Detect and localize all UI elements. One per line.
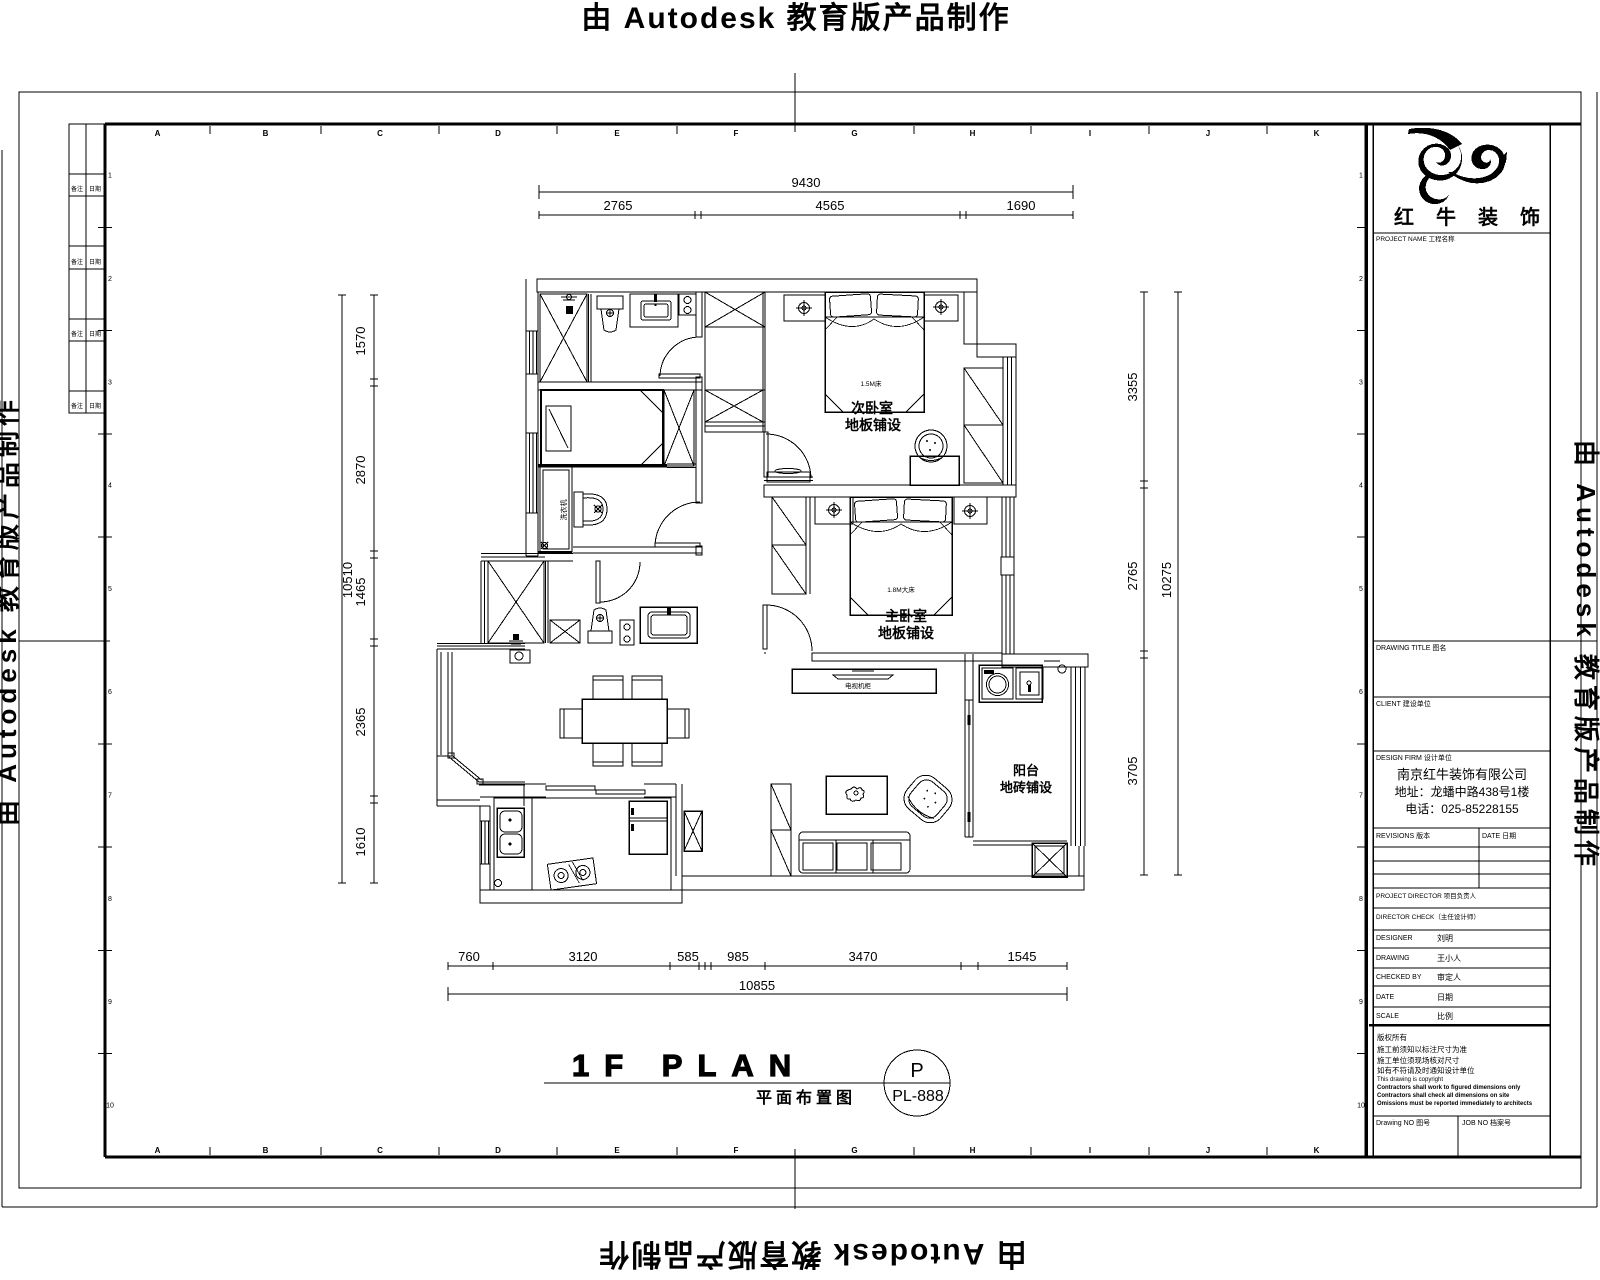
svg-text:985: 985: [727, 949, 749, 964]
svg-text:比例: 比例: [1437, 1011, 1453, 1021]
svg-text:E: E: [614, 1146, 620, 1155]
svg-text:1465: 1465: [353, 578, 368, 607]
svg-text:4: 4: [108, 483, 112, 490]
svg-text:3355: 3355: [1125, 373, 1140, 402]
svg-text:1545: 1545: [1008, 949, 1037, 964]
svg-text:C: C: [377, 129, 383, 138]
svg-text:日期: 日期: [89, 330, 101, 338]
svg-text:3470: 3470: [849, 949, 878, 964]
svg-text:日期: 日期: [1437, 993, 1453, 1002]
svg-text:电视机柜: 电视机柜: [845, 681, 872, 690]
svg-text:SCALE: SCALE: [1376, 1013, 1399, 1020]
svg-text:Omissions must be reported imm: Omissions must be reported immediately t…: [1377, 1101, 1533, 1107]
svg-text:由 Autodesk 教育版产品制作: 由 Autodesk 教育版产品制作: [597, 1237, 1026, 1271]
svg-text:主卧室: 主卧室: [885, 608, 927, 624]
svg-text:6: 6: [1359, 689, 1363, 696]
svg-text:DATE 日期: DATE 日期: [1482, 832, 1516, 840]
svg-text:C: C: [377, 1146, 383, 1155]
svg-text:红牛装饰: 红牛装饰: [1394, 205, 1562, 229]
svg-text:7: 7: [108, 792, 112, 799]
svg-text:Drawing NO 图号: Drawing NO 图号: [1376, 1119, 1430, 1127]
svg-text:3: 3: [108, 379, 112, 386]
svg-text:洗衣机: 洗衣机: [559, 500, 568, 521]
svg-text:I: I: [1089, 1146, 1091, 1155]
svg-text:版权所有: 版权所有: [1377, 1032, 1407, 1042]
svg-text:次卧室: 次卧室: [851, 400, 893, 416]
svg-text:3: 3: [1359, 379, 1363, 386]
svg-text:10855: 10855: [739, 978, 775, 993]
svg-text:PROJECT NAME 工程名称: PROJECT NAME 工程名称: [1376, 234, 1455, 243]
svg-text:10275: 10275: [1159, 562, 1174, 598]
svg-text:2765: 2765: [604, 198, 633, 213]
svg-text:Contractors shall work to figu: Contractors shall work to figured dimens…: [1377, 1085, 1521, 1091]
svg-text:JOB NO 档案号: JOB NO 档案号: [1462, 1118, 1511, 1127]
svg-text:DESIGNER: DESIGNER: [1376, 935, 1413, 942]
svg-text:1: 1: [108, 173, 112, 180]
svg-text:备注: 备注: [71, 185, 83, 193]
svg-text:This drawing is copyright: This drawing is copyright: [1377, 1077, 1443, 1083]
svg-text:审定人: 审定人: [1437, 972, 1461, 982]
svg-text:2: 2: [108, 276, 112, 283]
svg-text:Contractors shall check all di: Contractors shall check all dimensions o…: [1377, 1093, 1510, 1099]
svg-text:K: K: [1314, 129, 1320, 138]
svg-text:P: P: [910, 1060, 923, 1082]
svg-text:王小人: 王小人: [1437, 954, 1461, 963]
svg-text:K: K: [1314, 1146, 1320, 1155]
svg-text:585: 585: [677, 949, 699, 964]
svg-text:地址：龙蟠中路438号1楼: 地址：龙蟠中路438号1楼: [1395, 784, 1530, 799]
svg-text:2: 2: [1359, 276, 1363, 283]
svg-text:DRAWING: DRAWING: [1376, 955, 1410, 962]
svg-text:A: A: [155, 129, 161, 138]
svg-text:8: 8: [1359, 896, 1363, 903]
svg-text:E: E: [614, 129, 620, 138]
svg-text:9430: 9430: [792, 175, 821, 190]
svg-text:1690: 1690: [1007, 198, 1036, 213]
svg-text:F: F: [734, 1146, 739, 1155]
svg-text:南京红牛装饰有限公司: 南京红牛装饰有限公司: [1397, 767, 1527, 782]
svg-text:D: D: [495, 129, 501, 138]
svg-text:2365: 2365: [353, 708, 368, 737]
svg-text:1.5M床: 1.5M床: [861, 379, 882, 388]
svg-text:日期: 日期: [89, 402, 101, 410]
svg-text:B: B: [263, 129, 269, 138]
svg-text:CHECKED BY: CHECKED BY: [1376, 974, 1422, 981]
svg-text:如有不符请及时通知设计单位: 如有不符请及时通知设计单位: [1377, 1065, 1475, 1075]
svg-text:H: H: [970, 129, 976, 138]
svg-text:地砖铺设: 地砖铺设: [1000, 780, 1053, 795]
svg-text:DESIGN FIRM 设计单位: DESIGN FIRM 设计单位: [1376, 753, 1452, 762]
svg-text:5: 5: [1359, 586, 1363, 593]
svg-text:4565: 4565: [816, 198, 845, 213]
svg-text:6: 6: [108, 689, 112, 696]
svg-text:由 Autodesk 教育版产品制作: 由 Autodesk 教育版产品制作: [581, 1, 1010, 35]
svg-text:9: 9: [1359, 999, 1363, 1006]
svg-text:REVISIONS 版本: REVISIONS 版本: [1376, 831, 1430, 840]
svg-text:10: 10: [1357, 1102, 1365, 1109]
svg-text:I: I: [1089, 129, 1091, 138]
svg-text:备注: 备注: [71, 402, 83, 410]
svg-text:760: 760: [458, 949, 480, 964]
svg-text:刘明: 刘明: [1437, 933, 1453, 943]
svg-text:DRAWING TITLE 图名: DRAWING TITLE 图名: [1376, 643, 1446, 652]
svg-text:J: J: [1206, 1146, 1210, 1155]
svg-text:DIRECTOR CHECK（主任设计师）: DIRECTOR CHECK（主任设计师）: [1376, 912, 1480, 921]
svg-text:B: B: [263, 1146, 269, 1155]
svg-text:地板铺设: 地板铺设: [845, 417, 902, 433]
svg-text:G: G: [851, 1146, 857, 1155]
svg-text:1570: 1570: [353, 327, 368, 356]
svg-text:1: 1: [1359, 173, 1363, 180]
svg-text:1610: 1610: [353, 828, 368, 857]
svg-text:9: 9: [108, 999, 112, 1006]
svg-text:G: G: [851, 129, 857, 138]
svg-text:D: D: [495, 1146, 501, 1155]
svg-text:2765: 2765: [1125, 562, 1140, 591]
svg-text:日期: 日期: [89, 185, 101, 193]
svg-text:J: J: [1206, 129, 1210, 138]
svg-text:10: 10: [106, 1102, 114, 1109]
svg-text:3705: 3705: [1125, 757, 1140, 786]
svg-text:3120: 3120: [569, 949, 598, 964]
svg-text:由 Autodesk 教育版产品制作: 由 Autodesk 教育版产品制作: [1571, 440, 1600, 871]
svg-text:DATE: DATE: [1376, 994, 1394, 1001]
svg-text:备注: 备注: [71, 258, 83, 266]
svg-text:PL-888: PL-888: [892, 1088, 944, 1105]
svg-text:7: 7: [1359, 792, 1363, 799]
svg-text:日期: 日期: [89, 258, 101, 266]
svg-text:备注: 备注: [71, 330, 83, 338]
svg-text:A: A: [155, 1146, 161, 1155]
svg-text:施工单位须现场核对尺寸: 施工单位须现场核对尺寸: [1377, 1055, 1460, 1065]
svg-text:平面布置图: 平面布置图: [756, 1088, 856, 1107]
svg-text:8: 8: [108, 896, 112, 903]
svg-text:1F PLAN: 1F PLAN: [572, 1048, 806, 1083]
svg-text:F: F: [734, 129, 739, 138]
svg-text:5: 5: [108, 586, 112, 593]
svg-text:H: H: [970, 1146, 976, 1155]
svg-text:4: 4: [1359, 483, 1363, 490]
svg-text:1.8M大床: 1.8M大床: [887, 585, 915, 594]
svg-text:地板铺设: 地板铺设: [878, 625, 935, 641]
svg-text:2870: 2870: [353, 456, 368, 485]
svg-text:CLIENT 建设单位: CLIENT 建设单位: [1376, 699, 1431, 708]
svg-text:阳台: 阳台: [1013, 763, 1039, 778]
svg-text:电话：025-85228155: 电话：025-85228155: [1405, 802, 1519, 816]
svg-text:施工前须知以标注尺寸为准: 施工前须知以标注尺寸为准: [1377, 1044, 1467, 1054]
svg-text:PROJECT DIRECTOR 项目负责人: PROJECT DIRECTOR 项目负责人: [1376, 891, 1477, 900]
